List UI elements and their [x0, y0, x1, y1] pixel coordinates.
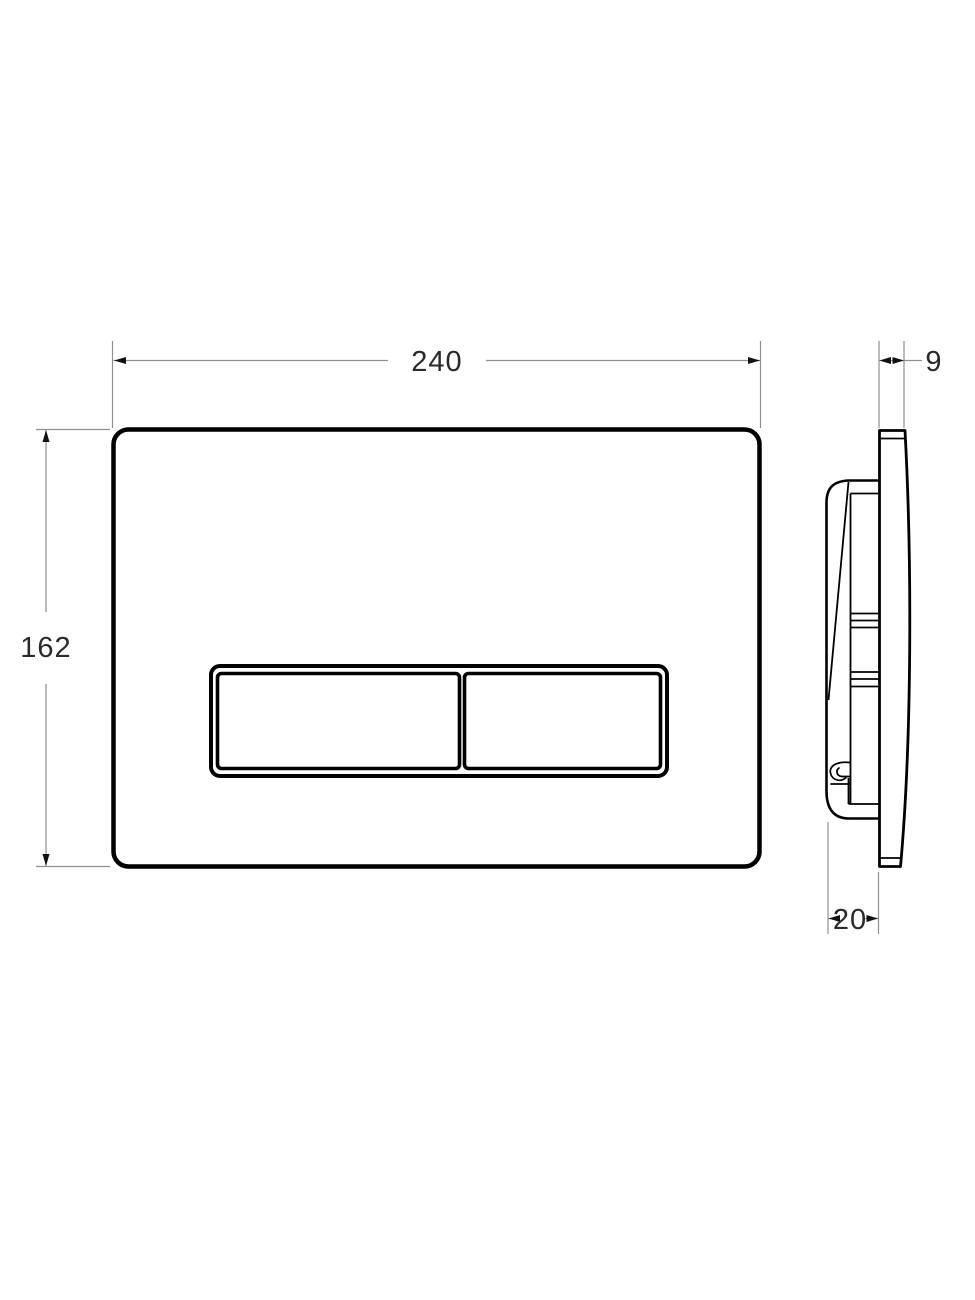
arrowhead-left [880, 357, 892, 364]
dimension-width: 240 [113, 341, 761, 428]
dimension-height: 162 [20, 430, 110, 867]
side-frame-lower-ribs [851, 672, 880, 687]
arrowhead-right [893, 357, 905, 364]
dimension-width-label: 240 [411, 346, 462, 378]
technical-drawing: 240 162 9 20 [0, 0, 975, 1300]
side-plate-profile [880, 431, 910, 867]
arrowhead-down [43, 854, 50, 866]
arrowhead-up [43, 430, 50, 442]
dimension-thickness: 9 [879, 341, 943, 428]
arrowhead-left [114, 357, 126, 364]
front-plate-outline [114, 430, 760, 867]
drawing-page: 240 162 9 20 [0, 0, 975, 1300]
side-frame-diagonal-line [829, 482, 849, 700]
arrowhead-right [867, 915, 879, 922]
dimension-height-label: 162 [20, 632, 71, 664]
dimension-depth: 20 [828, 822, 879, 936]
side-frame-outline [827, 481, 880, 819]
mounting-clip [830, 762, 850, 784]
front-view [114, 430, 760, 867]
dimension-thickness-label: 9 [925, 346, 942, 378]
arrowhead-right [748, 357, 760, 364]
large-flush-button [218, 674, 460, 769]
side-view [827, 431, 910, 867]
side-frame-upper-ribs [851, 614, 880, 628]
dimension-depth-label: 20 [833, 904, 867, 936]
small-flush-button [465, 674, 661, 769]
